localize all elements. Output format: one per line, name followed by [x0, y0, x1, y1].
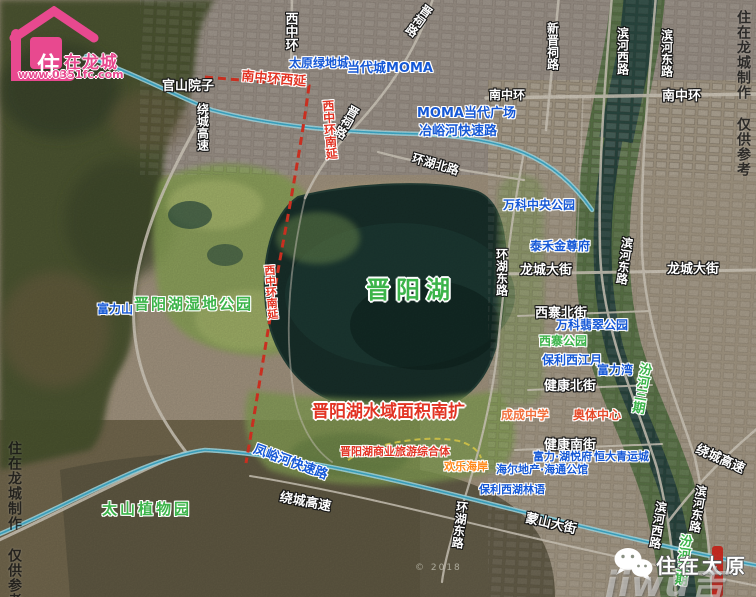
- map-label-xizhonghuan-south-ext-m: 西中环南延: [263, 264, 278, 320]
- map-label-huanle-haian: 欢乐海岸: [444, 461, 488, 472]
- map-label-xizhai-park: 西寨公园: [539, 335, 587, 347]
- map-label-binhe-west-road-top: 滨河西路: [616, 27, 628, 75]
- map-label-vanke-central-park: 万科中央公园: [503, 199, 575, 211]
- map-label-longcheng-ave-east: 龙城大街: [667, 263, 719, 277]
- map-label-taihe-jinzunfu: 泰禾金尊府: [530, 240, 590, 252]
- map-label-chengcheng-school: 成成中学: [501, 409, 549, 421]
- map-label-nanzhonghuan-west-ext: 南中环西延: [241, 70, 307, 89]
- map-label-baoli-xijiangyue: 保利西江月: [542, 354, 602, 366]
- map-label-raocheng-gaosu-west: 绕城高速: [196, 103, 208, 151]
- map-label-fuli-huyuefu: 富力·湖悦府: [533, 451, 592, 462]
- map-label-baoli-xihu-linyu: 保利西湖林语: [479, 484, 545, 495]
- map-label-lake-south-expansion: 晋阳湖水域面积南扩: [312, 404, 465, 422]
- map-label-jinyang-lake: 晋阳湖: [366, 278, 456, 303]
- map-label-nanzhonghuan-east: 南中环: [662, 90, 701, 104]
- imagery-credit: © 2018: [415, 563, 462, 573]
- map-label-dangdaicheng-moma: 当代城MOMA: [347, 62, 433, 76]
- map-label-hengda-qingyuncheng: 恒大青运城: [594, 451, 649, 462]
- map-label-fuli-shan: 富力山: [97, 303, 133, 315]
- map-label-haier-haitong: 海尔地产·海通公馆: [496, 464, 588, 475]
- map-label-vanke-feicui-park: 万科翡翠公园: [556, 319, 628, 331]
- map-label-yeyuhe-expressway: 冶峪河快速路: [419, 125, 497, 139]
- logo-url: www.0351fc.com: [18, 68, 124, 81]
- map-label-xizhonghuan-road: 西中环: [283, 12, 297, 51]
- map-label-jinci-road-top: 晋祠路: [403, 2, 434, 38]
- map-label-binhe-east-road-top: 滨河东路: [660, 29, 672, 77]
- map-label-nanzhonghuan-west: 南中环: [489, 89, 525, 101]
- map-label-binhe-east-road-mid: 滨河东路: [614, 236, 633, 285]
- map-label-jinyanghu-wetland-park: 晋阳湖湿地公园: [134, 297, 253, 313]
- map-label-lake-commerce-complex: 晋阳湖商业旅游综合体: [340, 446, 450, 457]
- map-label-huanhu-north-road: 环湖北路: [411, 152, 461, 177]
- map-label-huanhu-east-road-south: 环湖东路: [450, 500, 468, 549]
- map-label-moma-dangdai-plaza: MOMA当代广场: [417, 107, 516, 121]
- map-label-taiyuan-lvdicheng: 太原绿地城: [289, 57, 349, 69]
- map-label-binhe-east-road-south: 滨河东路: [687, 484, 707, 533]
- map-label-taishan-botanical-garden: 太山植物园: [102, 502, 192, 518]
- map-label-raocheng-gaosu-south: 绕城高速: [278, 491, 332, 514]
- watermark-right: 住在龙城制作 仅供参考: [733, 10, 753, 177]
- map-label-longcheng-ave-west: 龙城大街: [520, 264, 572, 278]
- map-label-fengyuhe-expressway: 凤峪河快速路: [251, 443, 329, 482]
- map-label-raocheng-gaosu-southeast: 绕城高速: [694, 443, 747, 477]
- watermark-left: 住在龙城制作 仅供参考: [4, 441, 24, 597]
- jiwu-watermark: jiwu吉屋: [605, 556, 756, 597]
- map-label-binhe-west-road-south: 滨河西路: [647, 500, 667, 549]
- map-label-mengshan-ave: 蒙山大街: [524, 512, 578, 537]
- map-label-guanshan-yuanzi: 官山院子: [162, 80, 214, 94]
- map-label-huanhu-east-road-mid: 环湖东路: [495, 248, 507, 296]
- zhuzailongcheng-logo: 住 在龙城 www.0351fc.com: [4, 6, 134, 86]
- map-label-fuli-wan: 富力湾: [597, 364, 633, 376]
- satellite-map: 官山院子西中环晋祠路晋祠路绕城高速新晋祠路滨河西路滨河东路南中环南中环环湖北路环…: [0, 0, 756, 597]
- map-label-xin-jinci-road: 新晋祠路: [546, 22, 558, 70]
- map-label-jiankang-north-st: 健康北街: [544, 380, 596, 394]
- map-label-xizhonghuan-south-ext-n: 西中环南延: [321, 99, 338, 160]
- map-label-aoti-center: 奥体中心: [573, 409, 621, 421]
- map-labels-layer: 官山院子西中环晋祠路晋祠路绕城高速新晋祠路滨河西路滨河东路南中环南中环环湖北路环…: [0, 0, 756, 597]
